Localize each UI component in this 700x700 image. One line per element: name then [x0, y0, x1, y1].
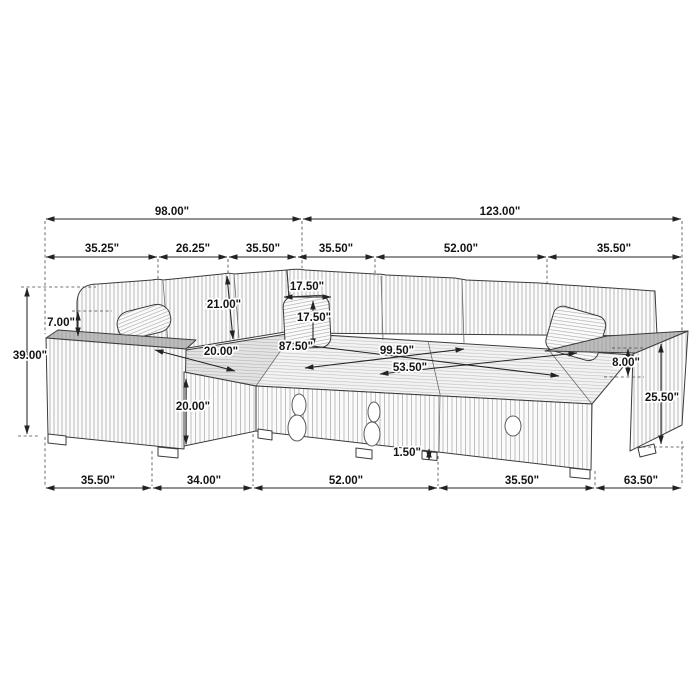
dim-label-87-50: 87.50": [279, 341, 313, 353]
dim-label-35-50-a: 35.50": [246, 243, 280, 255]
dim-label-pillow-w: 17.50": [290, 281, 324, 293]
dim-label-53-50: 53.50": [393, 362, 427, 374]
left-arm-front-face: [46, 338, 186, 449]
leg: [356, 448, 372, 459]
leg: [158, 447, 178, 458]
dim-label-20-height: 20.00": [176, 401, 210, 413]
sofa-drawing: [46, 269, 688, 479]
dim-label-35-50-b: 35.50": [319, 243, 353, 255]
dim-label-26-25: 26.25": [176, 243, 210, 255]
dimension-diagram: 98.00" 123.00" 35.25" 26.25" 35.50" 35.5…: [0, 0, 700, 700]
handle-loop: [288, 415, 306, 441]
dim-label-34: 34.00": [187, 475, 221, 487]
leg: [258, 429, 272, 440]
handle-loop: [505, 416, 521, 436]
handle-loop: [364, 422, 380, 446]
dim-label-35-50-c: 35.50": [597, 243, 631, 255]
dim-label-25-50: 25.50": [645, 392, 679, 404]
dim-label-pillow-h: 17.50": [297, 312, 331, 324]
dim-label-overall-left: 98.00": [155, 206, 189, 218]
dim-label-35-50-bottom: 35.50": [81, 475, 115, 487]
dim-label-35-25: 35.25": [85, 243, 119, 255]
dim-label-52-bottom: 52.00": [329, 475, 363, 487]
dim-label-7: 7.00": [47, 317, 75, 329]
dim-label-20-depth: 20.00": [204, 346, 238, 358]
dim-label-39: 39.00": [13, 350, 47, 362]
dim-label-1-50: 1.50": [393, 447, 421, 459]
handle-loop: [292, 394, 306, 416]
handle-loop: [368, 402, 380, 422]
dim-label-21: 21.00": [207, 299, 241, 311]
dim-label-63-50: 63.50": [624, 475, 658, 487]
leg: [570, 468, 590, 479]
diagram-canvas: 98.00" 123.00" 35.25" 26.25" 35.50" 35.5…: [0, 0, 700, 700]
leg: [48, 434, 66, 445]
dim-label-99-50: 99.50": [380, 345, 414, 357]
dim-label-overall-right: 123.00": [480, 206, 521, 218]
dim-label-35-50-bottom-b: 35.50": [505, 475, 539, 487]
dim-label-8: 8.00": [612, 357, 640, 369]
dim-label-52: 52.00": [444, 243, 478, 255]
